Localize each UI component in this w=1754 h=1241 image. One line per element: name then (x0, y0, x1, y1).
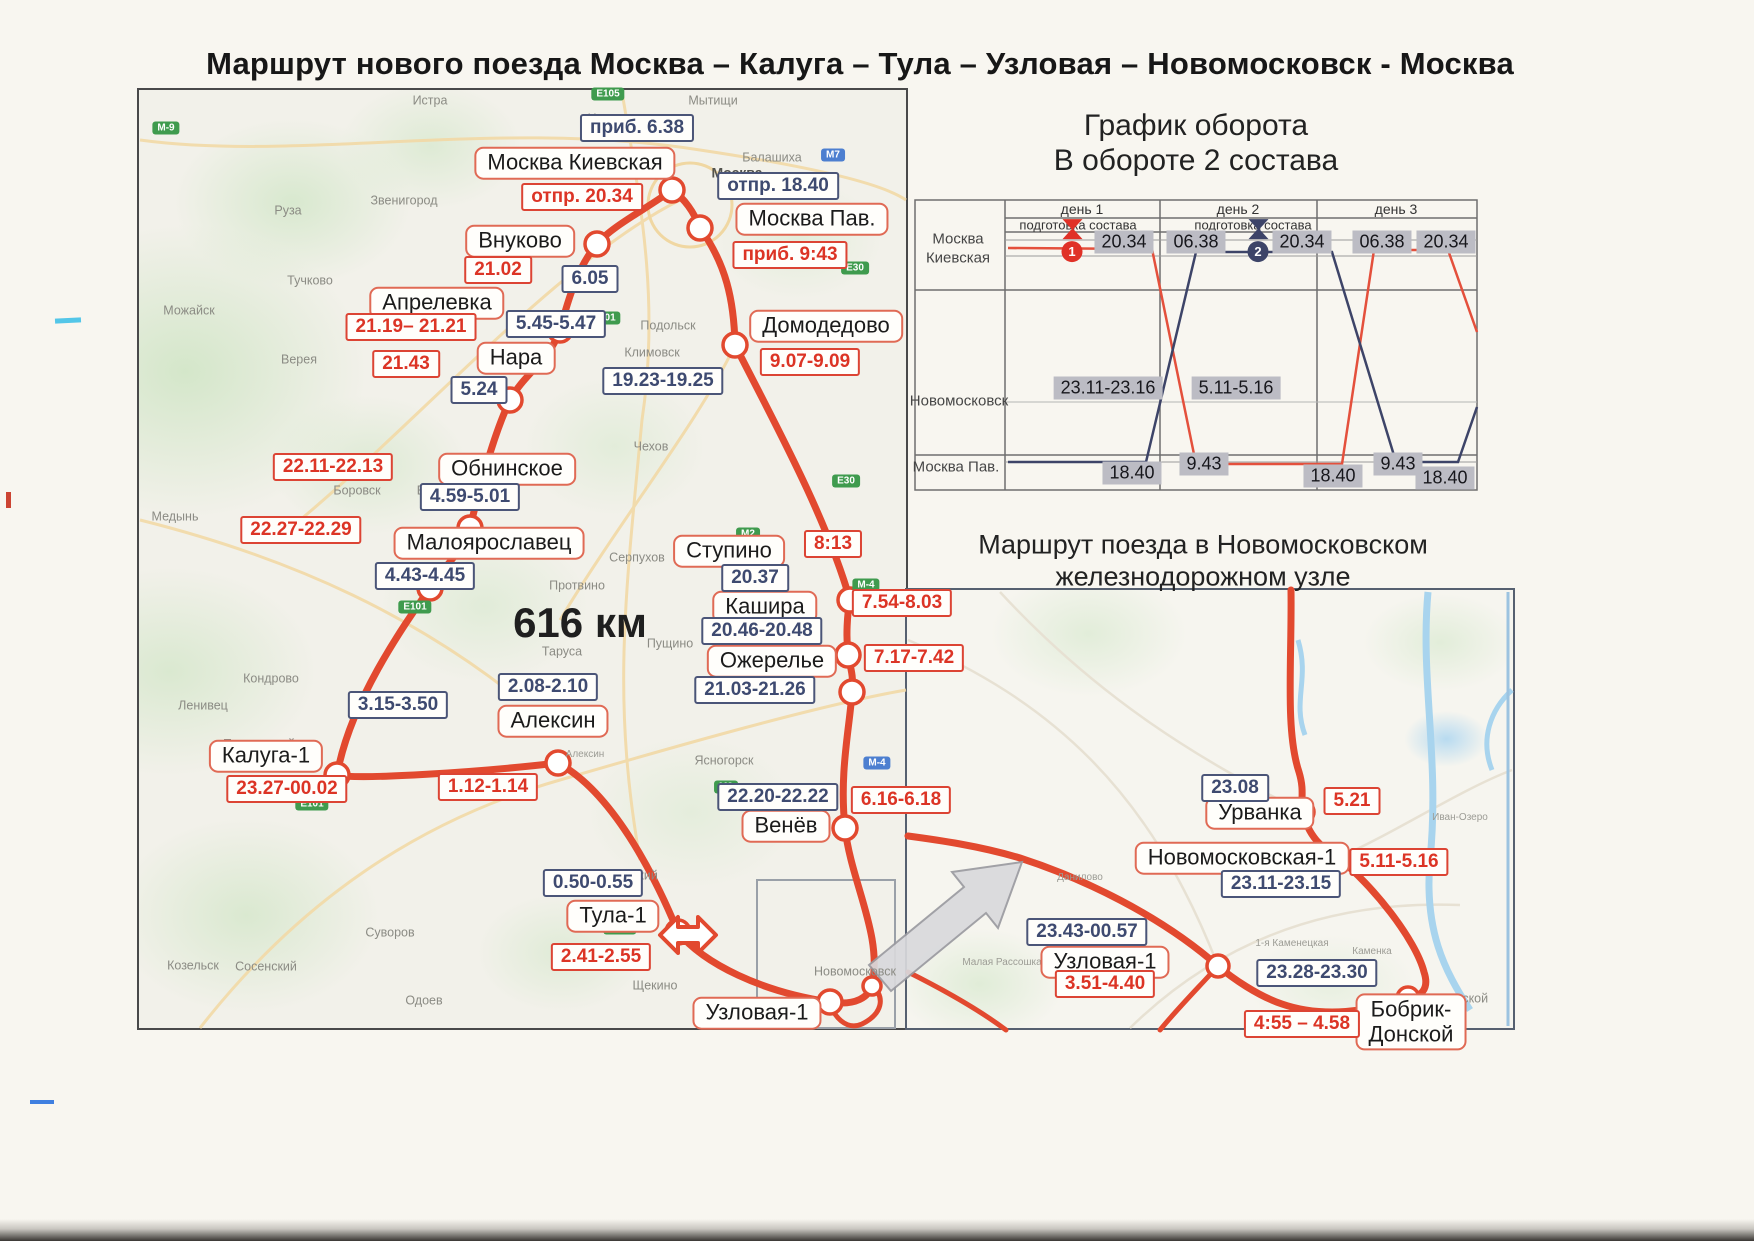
station-label: Ожерелье (707, 645, 837, 678)
place-label: Щекино (633, 979, 678, 994)
place-label: Ленивец (178, 699, 228, 714)
station-label: Калуга-1 (209, 740, 323, 773)
trainset-marker: 1 (1062, 219, 1083, 262)
place-label: Подольск (640, 319, 695, 334)
place-label: Можайск (163, 304, 214, 319)
place-label: Каменка (1352, 946, 1392, 958)
time-label: 21.02 (464, 256, 532, 284)
station-label: Москва Пав. (735, 203, 888, 236)
road-badge: Е101 (398, 601, 431, 614)
time-label: 5.11-5.16 (1349, 848, 1448, 876)
turnover-time-cell: 20.34 (1094, 231, 1153, 254)
turnover-title: График оборота (1084, 109, 1308, 143)
time-label: 21.03-21.26 (694, 676, 815, 704)
station-label: Малоярославец (394, 527, 585, 560)
place-label: Боровск (333, 484, 380, 499)
place-label: Чехов (634, 440, 669, 455)
time-label: 5.21 (1324, 787, 1381, 815)
time-label: отпр. 20.34 (521, 183, 643, 211)
time-label: 3.51-4.40 (1055, 970, 1155, 998)
turnover-subtitle: В обороте 2 состава (1054, 144, 1338, 178)
time-label: 2.08-2.10 (498, 673, 598, 701)
labels-layer: График оборота В обороте 2 состава Маршр… (0, 0, 1754, 1241)
road-badge: М-9 (152, 122, 179, 135)
time-label: 22.11-22.13 (273, 453, 393, 481)
place-label: Новомосковск (814, 965, 896, 980)
station-label: Узловая-1 (692, 997, 821, 1030)
road-badge: Е30 (832, 475, 860, 488)
time-label: 4.43-4.45 (375, 562, 475, 590)
hourglass-icon-bottom (1248, 228, 1268, 239)
trainset-number: 2 (1254, 244, 1261, 259)
station-label: Алексин (497, 705, 608, 738)
place-label: Протвино (549, 579, 605, 594)
place-label: Пущино (647, 637, 693, 652)
turnover-time-cell: 9.43 (1179, 453, 1228, 476)
time-label: 23.43-00.57 (1026, 918, 1147, 946)
route-distance-label: 616 км (513, 599, 647, 647)
turnover-day-header: день 3 (1375, 201, 1418, 217)
slide: Маршрут нового поезда Москва – Калуга – … (0, 0, 1754, 1241)
place-label: Иван-Озеро (1432, 812, 1488, 824)
time-label: 3.15-3.50 (348, 691, 448, 719)
road-badge: М7 (821, 149, 845, 162)
place-label: Мытищи (688, 94, 737, 109)
turnover-time-cell: 20.34 (1416, 231, 1475, 254)
time-label: 5.24 (451, 376, 508, 404)
turnover-time-cell: 18.40 (1102, 462, 1161, 485)
time-label: 1.12-1.14 (438, 773, 538, 801)
time-label: 20.37 (721, 564, 789, 592)
place-label: Руза (274, 204, 301, 219)
time-label: 6.05 (562, 265, 619, 293)
place-label: Звенигород (370, 194, 437, 209)
place-label: Верея (281, 353, 317, 368)
scan-artifact (6, 492, 11, 508)
turnover-time-cell: 06.38 (1352, 231, 1411, 254)
station-label: Внуково (465, 225, 575, 258)
place-label: Малая Рассошка (962, 957, 1041, 969)
scan-artifact (30, 1100, 54, 1104)
turnover-day-header: день 1 (1061, 201, 1104, 217)
place-label: Кондрово (243, 672, 299, 687)
time-label: 7.17-7.42 (864, 644, 964, 672)
time-label: 21.43 (372, 350, 440, 378)
turnover-row-label: Москва Киевская (926, 230, 990, 268)
time-label: 23.08 (1201, 774, 1269, 802)
turnover-time-cell: 5.11-5.16 (1192, 377, 1281, 400)
time-label: 2.41-2.55 (551, 943, 651, 971)
place-label: Суворов (365, 926, 414, 941)
time-label: 23.27-00.02 (226, 775, 347, 803)
time-label: 7.54-8.03 (852, 589, 952, 617)
place-label: Алексин (566, 749, 605, 761)
station-label: Нара (477, 342, 556, 375)
turnover-time-cell: 18.40 (1303, 465, 1362, 488)
time-label: 22.27-22.29 (240, 516, 361, 544)
place-label: Таруса (542, 645, 582, 660)
station-label: Бобрик- Донской (1356, 993, 1467, 1050)
station-label: Ступино (673, 535, 785, 568)
scan-shadow (0, 1219, 1754, 1241)
station-label: Тула-1 (566, 900, 659, 933)
trainset-marker: 2 (1248, 219, 1269, 262)
time-label: 0.50-0.55 (543, 869, 643, 897)
station-label: Домодедово (749, 310, 903, 343)
turnover-time-cell: 20.34 (1272, 231, 1331, 254)
time-label: 4.59-5.01 (420, 483, 520, 511)
place-label: Истра (413, 94, 448, 109)
station-label: Венёв (742, 810, 831, 843)
time-label: 19.23-19.25 (602, 367, 723, 395)
road-badge: М-4 (863, 757, 890, 770)
place-label: Серпухов (609, 551, 665, 566)
station-label: Обнинское (438, 453, 576, 486)
place-label: Балашиха (742, 151, 801, 166)
place-label: Одоев (405, 994, 442, 1009)
place-label: Тучково (287, 274, 333, 289)
place-label: Климовск (624, 346, 679, 361)
place-label: Данилово (1057, 872, 1103, 884)
time-label: 9.07-9.09 (760, 348, 860, 376)
time-label: 20.46-20.48 (701, 617, 822, 645)
time-label: 22.20-22.22 (717, 783, 838, 811)
hourglass-icon-bottom (1062, 228, 1082, 239)
turnover-time-cell: 06.38 (1166, 231, 1225, 254)
turnover-day-header: день 2 (1217, 201, 1260, 217)
station-label: Москва Киевская (474, 147, 675, 180)
turnover-time-cell: 18.40 (1415, 467, 1474, 490)
place-label: Медынь (152, 510, 199, 525)
time-label: отпр. 18.40 (717, 172, 839, 200)
time-label: 6.16-6.18 (851, 786, 951, 814)
trainset-number: 1 (1068, 244, 1075, 259)
turnover-row-label: Новомосковск (910, 393, 1008, 412)
junction-title-line1: Маршрут поезда в Новомосковском (978, 530, 1428, 561)
time-label: 5.45-5.47 (506, 310, 606, 338)
time-label: 23.11-23.15 (1221, 870, 1341, 898)
time-label: 23.28-23.30 (1256, 959, 1377, 987)
place-label: 1-я Каменецкая (1255, 938, 1328, 950)
time-label: 8:13 (804, 530, 862, 558)
place-label: Козельск (167, 959, 219, 974)
trainset-number-badge: 2 (1248, 241, 1269, 262)
trainset-number-badge: 1 (1062, 241, 1083, 262)
place-label: Сосенский (235, 960, 297, 975)
time-label: приб. 6.38 (580, 114, 694, 142)
time-label: приб. 9:43 (732, 241, 847, 269)
turnover-time-cell: 23.11-23.16 (1054, 377, 1163, 400)
turnover-row-label: Москва Пав. (913, 459, 1000, 478)
time-label: 4:55 – 4.58 (1244, 1010, 1360, 1038)
place-label: Ясногорск (694, 754, 753, 769)
road-badge: Е105 (591, 88, 624, 101)
junction-title-line2: железнодорожном узле (1056, 562, 1351, 593)
time-label: 21.19– 21.21 (346, 313, 477, 341)
